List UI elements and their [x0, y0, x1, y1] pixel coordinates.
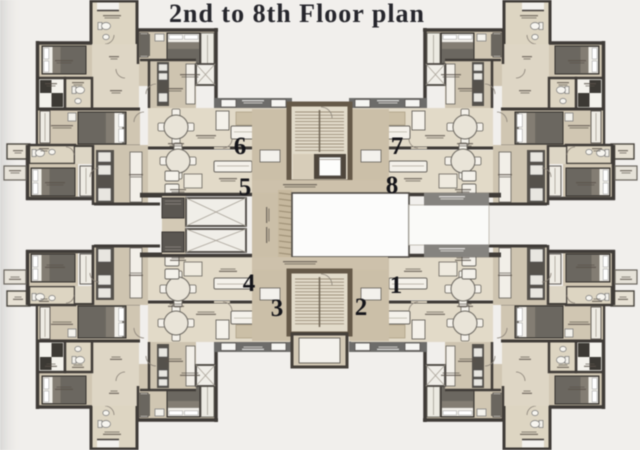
svg-text:5: 5 [239, 174, 252, 201]
svg-text:8: 8 [386, 172, 399, 199]
svg-text:6: 6 [234, 133, 247, 160]
svg-text:3: 3 [271, 295, 284, 322]
svg-text:2: 2 [355, 294, 368, 321]
svg-text:2nd to 8th Floor plan: 2nd to 8th Floor plan [169, 0, 425, 28]
svg-text:4: 4 [243, 270, 256, 297]
svg-text:1: 1 [390, 272, 403, 299]
svg-text:7: 7 [391, 133, 404, 160]
